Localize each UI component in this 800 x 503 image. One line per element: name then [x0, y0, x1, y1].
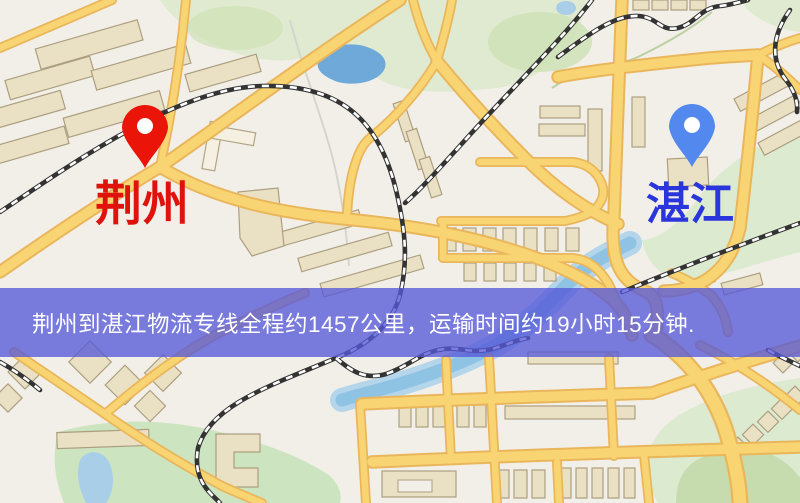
map-canvas[interactable]: 荆州 湛江 [0, 0, 800, 503]
destination-city-label: 湛江 [646, 180, 734, 229]
red-pin-hole [137, 118, 153, 134]
route-info-banner: 荆州到湛江物流专线全程约1457公里，运输时间约19小时15分钟. [0, 288, 800, 357]
blue-pin-hole [684, 117, 700, 133]
origin-city-label: 荆州 [95, 177, 189, 230]
map-screenshot: 荆州 湛江 荆州到湛江物流专线全程约1457公里，运输时间约19小时15分钟. [0, 0, 800, 503]
route-info-text: 荆州到湛江物流专线全程约1457公里，运输时间约19小时15分钟. [32, 307, 695, 339]
